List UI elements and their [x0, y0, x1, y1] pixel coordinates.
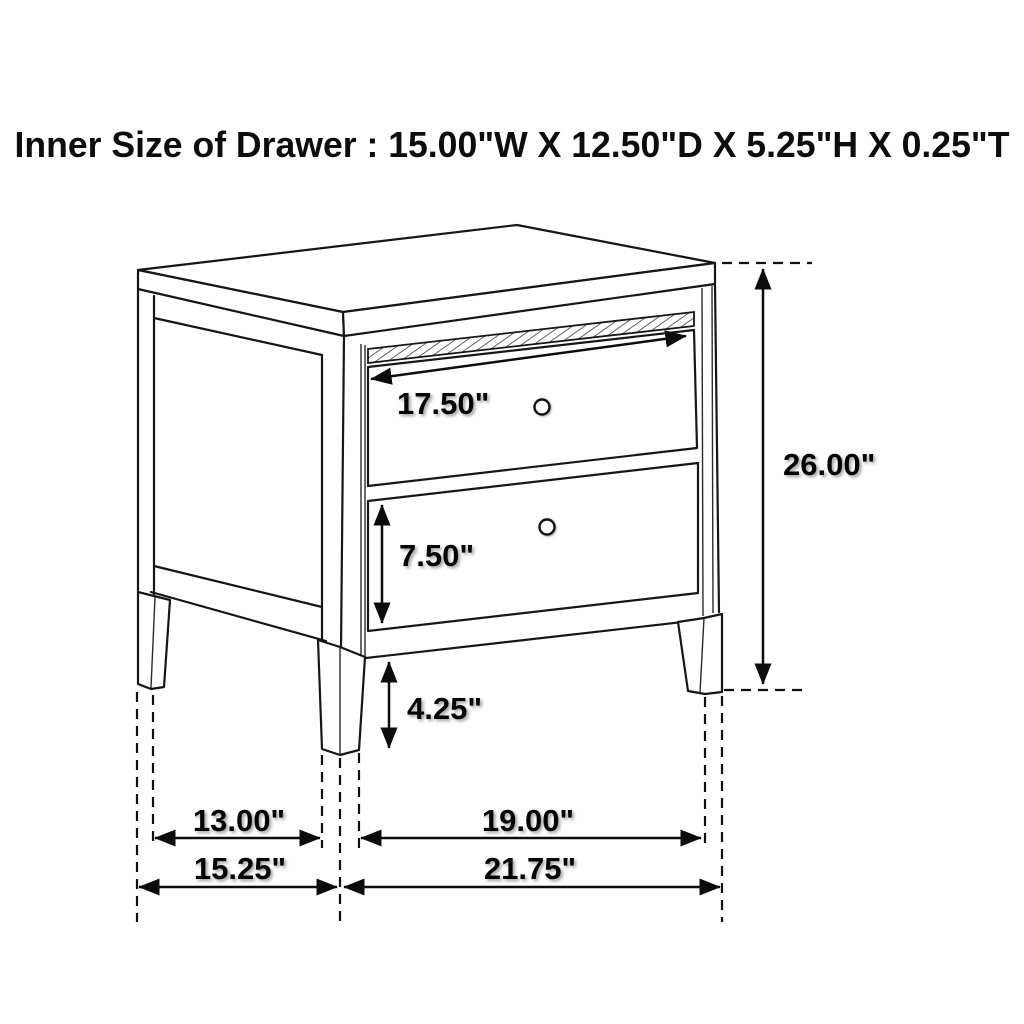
nightstand-drawing [138, 225, 722, 755]
dim-label-front-overall-width: 21.75" [484, 851, 576, 886]
dim-front-leg-spacing: 19.00" [361, 803, 701, 838]
dim-leg-height: 4.25" [389, 662, 482, 748]
dim-label-overall-height: 26.00" [783, 447, 875, 482]
dim-label-side-overall-depth: 15.25" [194, 851, 286, 886]
dim-label-top-drawer-width: 17.50" [397, 386, 489, 421]
front-face [340, 284, 719, 754]
dim-label-leg-height: 4.25" [407, 691, 482, 726]
dim-overall-height: 26.00" [763, 269, 875, 684]
nightstand-dimension-diagram: Inner Size of Drawer : 15.00"W X 12.50"D… [0, 0, 1024, 1024]
dim-side-leg-spacing: 13.00" [155, 803, 320, 838]
bottom-drawer-knob [540, 520, 555, 535]
dim-label-bottom-drawer-height: 7.50" [399, 538, 474, 573]
dim-side-overall-depth: 15.25" [139, 851, 337, 887]
dim-front-overall-width: 21.75" [344, 851, 720, 887]
front-left-leg [318, 640, 365, 755]
left-side-panel [138, 289, 326, 641]
dim-label-side-leg-spacing: 13.00" [193, 803, 285, 838]
top-drawer-knob [535, 400, 550, 415]
diagram-title: Inner Size of Drawer : 15.00"W X 12.50"D… [15, 124, 1010, 165]
dim-label-front-leg-spacing: 19.00" [482, 803, 574, 838]
diagram-page: Inner Size of Drawer : 15.00"W X 12.50"D… [0, 0, 1024, 1024]
